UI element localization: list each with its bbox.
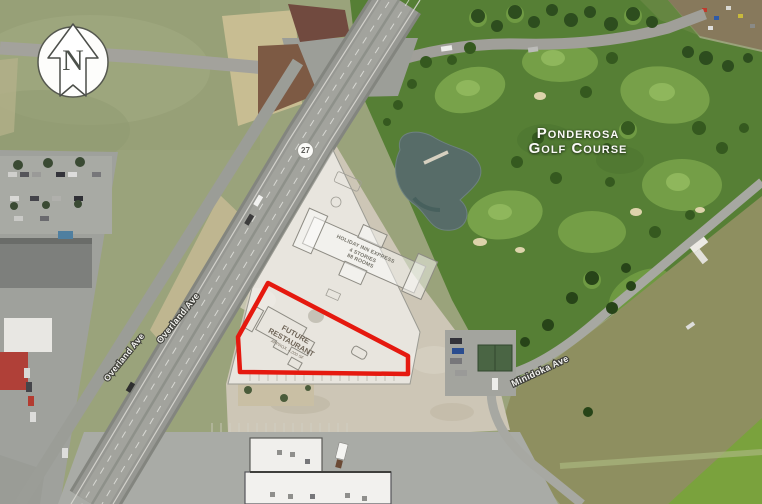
highway-shield-number: 27 (301, 146, 310, 155)
golf-course-name: Ponderosa Golf Course (498, 126, 658, 156)
aerial-site-map: HOLIDAY INN EXPRESS 4 STORIES 88 ROOMS F… (0, 0, 762, 504)
white-building (4, 318, 52, 352)
clubhouse-area (445, 330, 516, 396)
north-arrow-letter: N (58, 44, 88, 78)
aerial-imagery: HOLIDAY INN EXPRESS 4 STORIES 88 ROOMS F… (0, 0, 762, 504)
red-roof-building (0, 352, 28, 390)
highway-shield: 27 (297, 142, 314, 159)
golf-course-name-line1: Ponderosa (498, 126, 658, 141)
warehouse-roof (0, 238, 92, 288)
golf-course-name-line2: Golf Course (498, 141, 658, 156)
pool (58, 231, 73, 239)
